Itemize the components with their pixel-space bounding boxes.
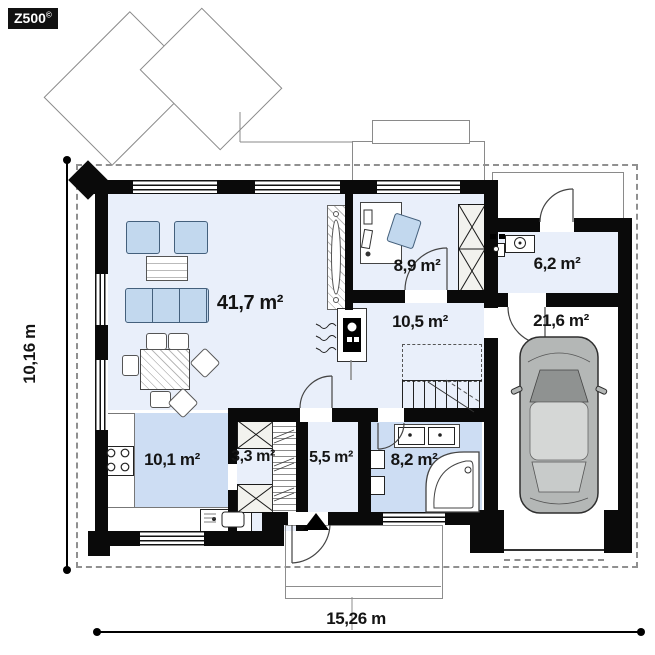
door-opening-office — [405, 290, 447, 303]
armchair-2 — [174, 221, 208, 254]
wall-garage-pier-left — [470, 510, 504, 553]
room-label-garage: 21,6 m² — [511, 312, 611, 330]
dimension-dot — [93, 628, 101, 636]
wall-garage-pier-right — [604, 510, 632, 553]
utility-switch-1 — [490, 234, 496, 239]
porch-outline — [285, 525, 443, 599]
entrance-arrow-icon — [303, 513, 329, 530]
dimension-dot — [63, 566, 71, 574]
door-opening-utility-garage — [508, 293, 546, 307]
dining-chair-1 — [146, 333, 167, 350]
window-living-2 — [255, 180, 340, 194]
living-wall-cabinet — [327, 205, 347, 310]
wall-left-1 — [95, 188, 108, 274]
dining-chair-4 — [150, 391, 171, 408]
wall-bottom-step — [262, 512, 284, 546]
dimension-label-width: 15,26 m — [276, 610, 436, 628]
bathroom-sink-1 — [398, 427, 425, 445]
dining-chair-3 — [122, 355, 139, 376]
door-opening-pantry — [228, 464, 237, 490]
pantry-cabinet-bottom — [237, 484, 275, 513]
room-label-pantry: 3,3 m² — [230, 449, 276, 466]
door-opening-utility-exterior — [540, 218, 574, 232]
room-label-living: 41,7 m² — [195, 293, 305, 314]
floor-plan: Z500© — [0, 0, 655, 655]
window-living-1 — [133, 180, 217, 194]
stairs-treads — [402, 380, 482, 411]
armchair-1 — [126, 221, 160, 254]
entry-closet — [272, 420, 298, 515]
window-living-left-2 — [95, 360, 108, 430]
door-opening-hall-garage — [484, 308, 498, 338]
door-opening-bathroom — [378, 408, 404, 422]
stairs-opening-dashed — [402, 344, 482, 382]
chimney-outline — [372, 120, 470, 144]
window-bathroom — [383, 512, 445, 525]
room-label-entry: 5,5 m² — [301, 450, 361, 467]
fireplace-firebox — [343, 318, 361, 352]
wall-entry-bath — [358, 422, 371, 525]
window-living-left-1 — [95, 274, 108, 325]
dining-table — [140, 349, 190, 390]
utility-switch-2 — [499, 234, 505, 239]
room-label-bathroom: 8,2 m² — [374, 451, 454, 469]
window-office — [377, 180, 460, 194]
bathroom-sink-2 — [428, 427, 455, 445]
room-label-utility: 6,2 m² — [512, 255, 602, 273]
registered-mark: © — [46, 10, 52, 19]
window-kitchen — [140, 531, 204, 546]
brand-logo-text: Z500 — [14, 10, 46, 26]
room-label-office: 8,9 m² — [377, 257, 457, 275]
terrace-roof-outline-2 — [140, 8, 283, 151]
dimension-label-height: 10,16 m — [21, 294, 39, 414]
pantry-cabinet-top — [237, 420, 275, 449]
garage-door-line — [504, 549, 604, 551]
coffee-table — [146, 256, 188, 281]
wardrobe-x-icon — [459, 205, 485, 293]
office-wardrobe — [458, 204, 486, 294]
boiler — [505, 235, 535, 253]
cabinet-x-icon — [238, 421, 274, 448]
room-label-hall: 10,5 m² — [375, 313, 465, 331]
room-label-kitchen: 10,1 m² — [122, 451, 222, 469]
roof-connector-lines — [240, 112, 352, 142]
porch-step-line — [285, 586, 441, 587]
wall-left-3 — [95, 430, 108, 533]
wall-left-2 — [95, 325, 108, 360]
cabinet-x-icon — [238, 485, 274, 512]
dimension-dot — [637, 628, 645, 636]
wall-hall-south — [228, 408, 484, 422]
brand-logo: Z500© — [8, 8, 58, 29]
dimension-line-left — [66, 160, 68, 570]
dining-chair-2 — [168, 333, 189, 350]
door-opening-living-entry — [300, 408, 332, 422]
garage-door-dashed — [504, 559, 604, 561]
dimension-line-bottom — [97, 631, 642, 633]
dimension-dot — [63, 156, 71, 164]
wall-garage-right — [618, 218, 632, 552]
